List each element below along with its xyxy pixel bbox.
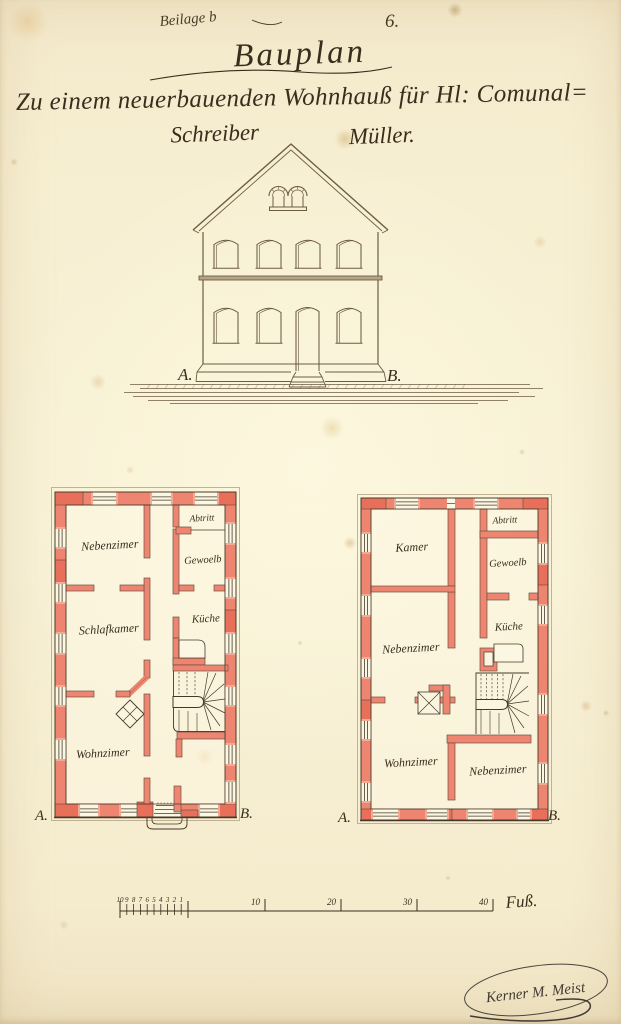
svg-text:Abtritt: Abtritt — [188, 513, 215, 524]
svg-text:Kamer: Kamer — [394, 539, 429, 555]
svg-text:8: 8 — [132, 896, 136, 904]
svg-text:Müller.: Müller. — [347, 122, 415, 149]
svg-text:4: 4 — [159, 896, 163, 904]
svg-text:B.: B. — [240, 806, 253, 822]
svg-text:Wohnzimer: Wohnzimer — [384, 754, 439, 771]
svg-text:Zu einem neuerbauenden Wohnhau: Zu einem neuerbauenden Wohnhauß für Hl: … — [16, 79, 588, 116]
svg-text:10: 10 — [117, 896, 125, 904]
svg-text:1: 1 — [179, 896, 183, 904]
svg-text:10: 10 — [251, 897, 261, 907]
svg-text:Abtritt: Abtritt — [491, 515, 518, 526]
svg-text:9: 9 — [125, 896, 129, 904]
svg-text:3: 3 — [165, 896, 170, 904]
svg-text:30: 30 — [402, 897, 413, 907]
svg-text:Wohnzimer: Wohnzimer — [76, 745, 131, 762]
svg-text:Beilage b: Beilage b — [159, 9, 218, 30]
svg-text:Küche: Küche — [493, 620, 523, 634]
svg-text:Gewoelb: Gewoelb — [184, 554, 222, 567]
svg-text:Fuß.: Fuß. — [504, 891, 538, 912]
svg-text:6: 6 — [145, 896, 149, 904]
svg-text:5: 5 — [152, 896, 156, 904]
svg-text:2: 2 — [173, 896, 177, 904]
svg-text:B.: B. — [387, 366, 402, 385]
svg-text:Küche: Küche — [190, 612, 220, 626]
svg-text:7: 7 — [139, 896, 143, 904]
svg-text:40: 40 — [479, 897, 489, 907]
svg-text:Bauplan: Bauplan — [233, 34, 367, 75]
svg-text:B.: B. — [548, 808, 561, 824]
svg-text:A.: A. — [34, 808, 48, 824]
svg-text:A.: A. — [337, 810, 351, 826]
svg-text:6.: 6. — [385, 11, 399, 32]
svg-text:Kerner M. Meist: Kerner M. Meist — [484, 980, 587, 1007]
svg-text:Schreiber: Schreiber — [170, 119, 260, 147]
svg-text:A.: A. — [177, 365, 193, 384]
svg-text:Gewoelb: Gewoelb — [489, 557, 527, 570]
svg-text:20: 20 — [327, 897, 337, 907]
